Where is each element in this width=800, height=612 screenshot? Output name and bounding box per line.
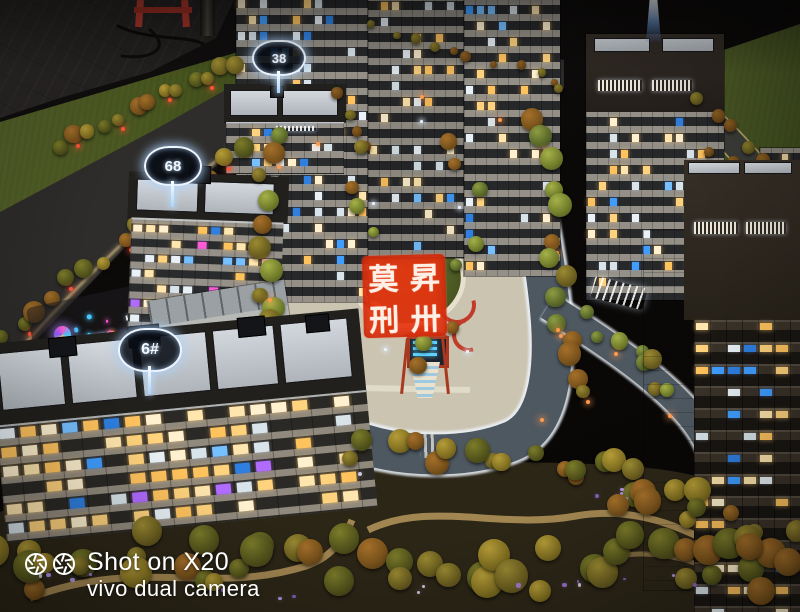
- camera-watermark: Shot on X20 vivo dual camera: [24, 549, 260, 601]
- tree: [736, 533, 763, 560]
- tree: [786, 520, 800, 542]
- seal-char: 刑: [363, 296, 406, 338]
- tree: [634, 487, 662, 515]
- sign-68-label: 68: [165, 158, 182, 175]
- tree: [723, 505, 739, 521]
- tree: [607, 494, 629, 516]
- seal-char: 昇: [403, 254, 446, 296]
- sign-38-label: 38: [272, 51, 286, 66]
- watermark-line1: Shot on X20: [87, 549, 260, 576]
- sign-pole: [148, 366, 151, 394]
- model-photo-scene: 38 68 6# 莫 昇 刑 卅: [0, 0, 800, 612]
- watermark-line2: vivo dual camera: [87, 576, 260, 601]
- sign-pole: [277, 71, 280, 93]
- red-seal-watermark: 莫 昇 刑 卅: [362, 254, 447, 338]
- sign-pole: [171, 181, 174, 207]
- seal-char: 莫: [362, 255, 405, 297]
- sign-6: 6#: [118, 328, 178, 368]
- sign-6-label: 6#: [141, 341, 159, 359]
- seal-char: 卅: [405, 295, 448, 337]
- sign-38: 38: [252, 40, 302, 72]
- dual-aperture-icon: [24, 549, 76, 579]
- sign-68: 68: [144, 146, 198, 182]
- tree: [687, 498, 706, 517]
- tree: [664, 479, 686, 501]
